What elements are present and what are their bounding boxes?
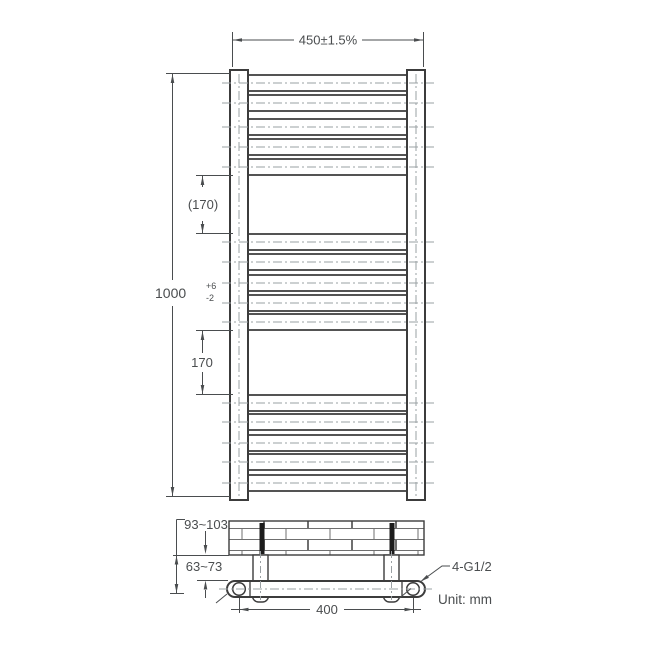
rung-gap-bottom-label: 170 <box>191 355 213 370</box>
wall-to-tube-far-dimension <box>170 520 185 594</box>
brick-wall <box>229 521 424 555</box>
arrowhead-right-icon <box>405 608 414 612</box>
arrowhead-up-icon <box>201 331 205 340</box>
thread-spec-label: 4-G1/2 <box>452 559 492 574</box>
width-dimension-label: 450±1.5% <box>299 33 358 48</box>
height-value: 1000 <box>155 285 186 301</box>
valve-spacing-label: 400 <box>316 602 338 617</box>
left-bracket-stem <box>260 523 265 554</box>
wall-to-tube-near-label: 63~73 <box>186 559 223 574</box>
radiator-front-view <box>222 70 434 500</box>
arrowhead-down-icon <box>171 487 175 496</box>
towel-radiator-drawing: 450±1.5% 1000 +6 -2 (170) 170 <box>0 0 650 650</box>
detail-line-left <box>216 594 227 603</box>
arrowhead-up-icon <box>175 556 179 565</box>
arrowhead-right-icon <box>414 38 423 42</box>
arrowhead-up-icon <box>204 581 208 590</box>
height-tolerance-minus: -2 <box>206 293 214 303</box>
unit-label: Unit: mm <box>438 592 492 607</box>
arrowhead-left-icon <box>233 38 242 42</box>
right-bracket-stem <box>390 523 395 554</box>
arrowhead-down-icon <box>204 545 208 554</box>
arrowhead-down-icon <box>175 584 179 593</box>
thread-spec-leader <box>421 566 451 582</box>
arrowhead-up-icon <box>171 74 175 83</box>
height-dimension-label: 1000 +6 -2 <box>155 281 216 303</box>
wall-to-tube-far-label: 93~103 <box>184 517 228 532</box>
arrowhead-up-icon <box>201 176 205 185</box>
centerlines <box>222 74 434 496</box>
rung-gap-top-label: (170) <box>188 197 218 212</box>
arrowhead-left-icon <box>240 608 249 612</box>
technical-drawing-canvas: 450±1.5% 1000 +6 -2 (170) 170 <box>0 0 650 650</box>
arrowhead-down-icon <box>201 385 205 394</box>
height-tolerance-plus: +6 <box>206 281 216 291</box>
arrowhead-down-icon <box>201 224 205 233</box>
